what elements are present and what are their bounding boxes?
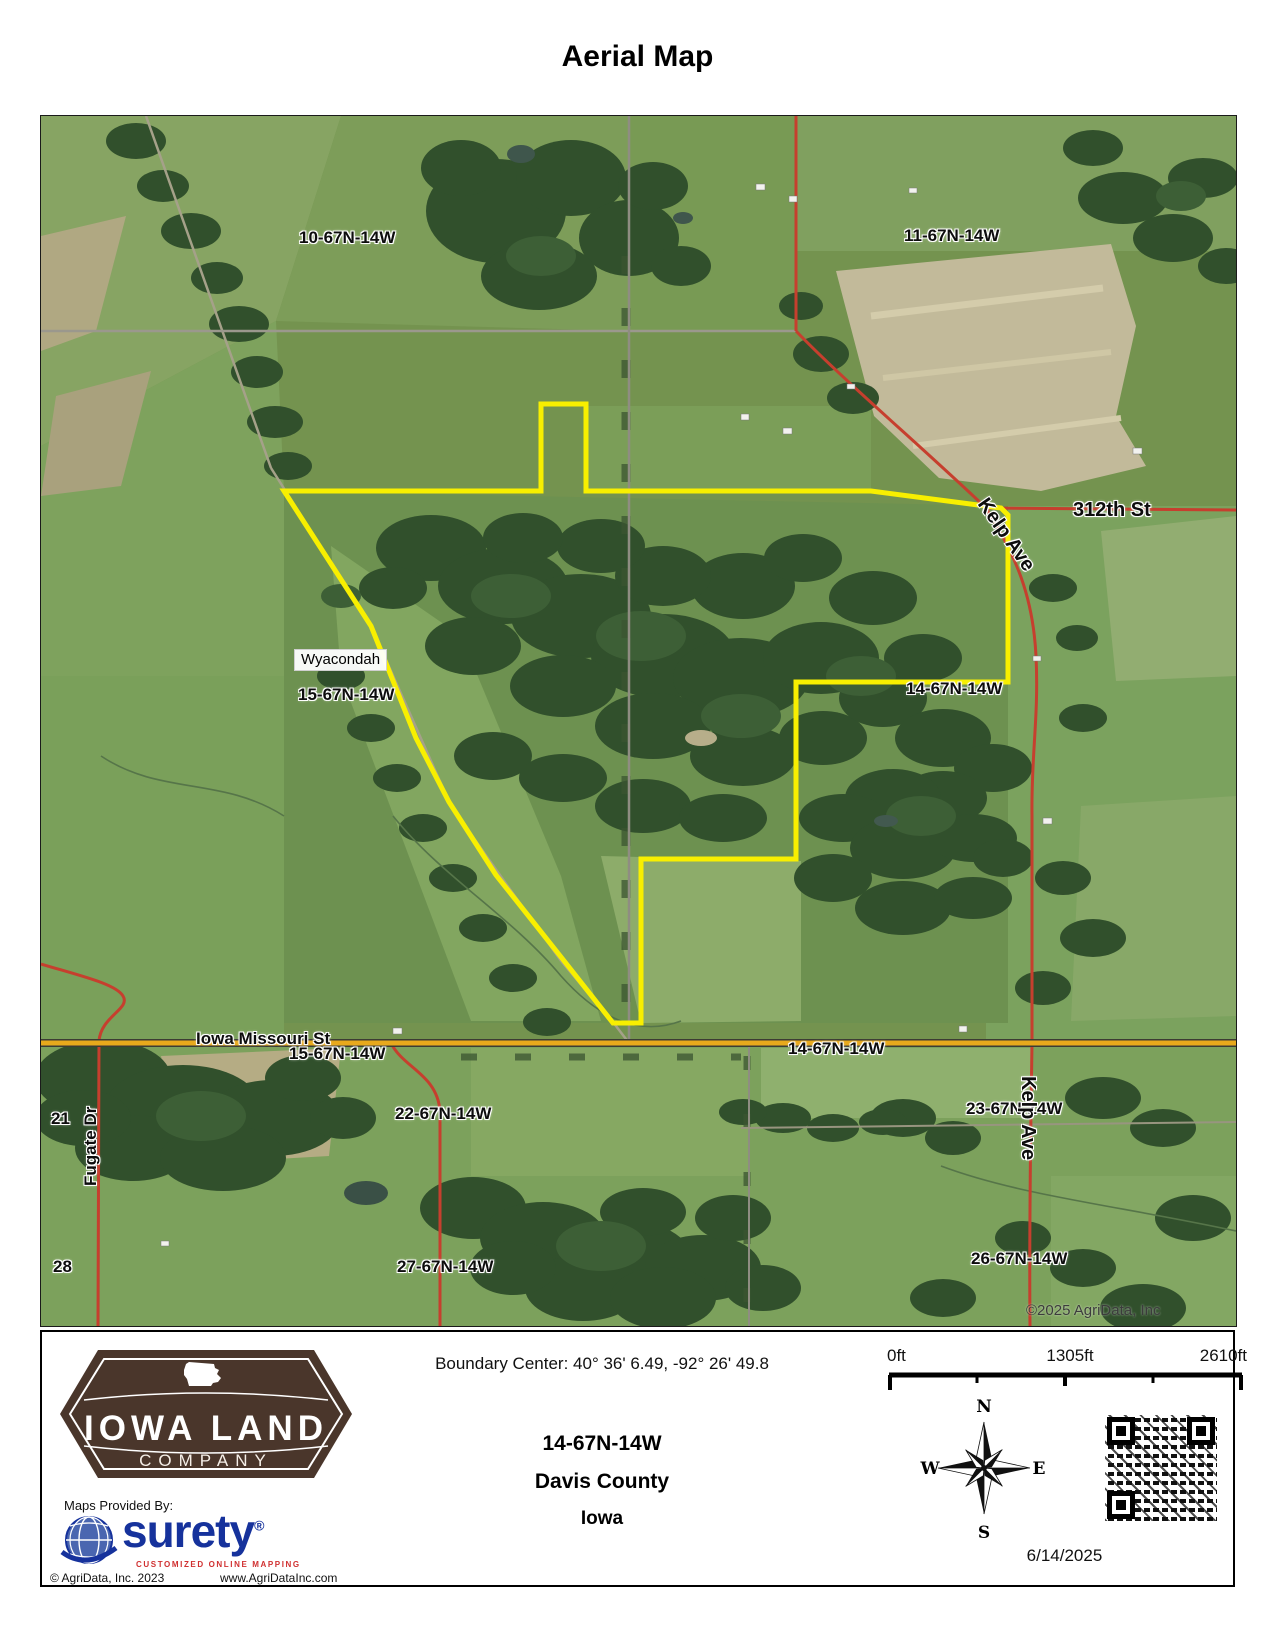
label-section-10: 10-67N-14W bbox=[299, 228, 395, 248]
county-label: Davis County bbox=[442, 1470, 762, 1494]
scale-tick-0: 0ft bbox=[887, 1346, 906, 1366]
registered-mark: ® bbox=[254, 1518, 263, 1534]
township-label: 14-67N-14W bbox=[442, 1432, 762, 1456]
label-section-26: 26-67N-14W bbox=[971, 1249, 1067, 1269]
scale-tick-end: 2610ft bbox=[1175, 1346, 1247, 1366]
compass-n: N bbox=[976, 1397, 992, 1417]
state-label: Iowa bbox=[442, 1508, 762, 1530]
iowa-land-company-logo: IOWA LAND COMPANY bbox=[56, 1344, 356, 1484]
surety-wordmark: surety bbox=[122, 1505, 254, 1557]
map-date: 6/14/2025 bbox=[992, 1546, 1137, 1566]
label-section-15-upper: 15-67N-14W bbox=[298, 685, 394, 705]
compass-e: E bbox=[1033, 1459, 1046, 1479]
qr-finder-top-right bbox=[1187, 1417, 1215, 1445]
location-block: 14-67N-14W Davis County Iowa bbox=[442, 1432, 762, 1530]
page-title: Aerial Map bbox=[0, 40, 1275, 74]
qr-finder-top-left bbox=[1107, 1417, 1135, 1445]
scale-tick-mid: 1305ft bbox=[1015, 1346, 1125, 1366]
label-fugate-dr: Fugate Dr bbox=[81, 1107, 101, 1186]
logo-line1: IOWA LAND bbox=[84, 1409, 328, 1448]
compass-w: W bbox=[919, 1459, 940, 1479]
label-section-21: 21 bbox=[51, 1109, 70, 1129]
surety-tagline: CUSTOMIZED ONLINE MAPPING bbox=[136, 1560, 301, 1569]
aerial-map-page: Aerial Map bbox=[0, 0, 1275, 1650]
boundary-center-text: Boundary Center: 40° 36' 6.49, -92° 26' … bbox=[362, 1354, 842, 1374]
label-wyacondah: Wyacondah bbox=[294, 649, 387, 671]
map-view: 10-67N-14W 11-67N-14W 312th St Kelp Ave … bbox=[40, 115, 1237, 1327]
label-section-15-road: 15-67N-14W bbox=[289, 1044, 385, 1064]
surety-globe-icon bbox=[58, 1512, 120, 1570]
label-section-22: 22-67N-14W bbox=[395, 1104, 491, 1124]
label-section-14-road: 14-67N-14W bbox=[788, 1039, 884, 1059]
label-section-23: 23-67N-14W bbox=[966, 1099, 1062, 1119]
aerial-imagery bbox=[41, 116, 1236, 1326]
footer-website: www.AgriDataInc.com bbox=[220, 1571, 337, 1585]
label-section-28: 28 bbox=[53, 1257, 72, 1277]
label-section-11: 11-67N-14W bbox=[904, 226, 999, 246]
label-kelp-ave-bottom: Kelp Ave bbox=[1016, 1076, 1039, 1160]
label-312th-st: 312th St bbox=[1073, 499, 1151, 522]
qr-code bbox=[1105, 1415, 1217, 1521]
surety-logo-text: surety® bbox=[122, 1504, 263, 1558]
label-section-14-mid: 14-67N-14W bbox=[906, 679, 1002, 699]
compass-s: S bbox=[978, 1523, 990, 1540]
label-section-27: 27-67N-14W bbox=[397, 1257, 493, 1277]
map-copyright: ©2025 AgriData, Inc bbox=[1026, 1302, 1160, 1319]
compass-rose: N S W E bbox=[919, 1390, 1049, 1540]
footer-panel: IOWA LAND COMPANY Maps Provided By: sure… bbox=[40, 1330, 1235, 1587]
scale-bar bbox=[887, 1372, 1245, 1392]
qr-finder-bottom-left bbox=[1107, 1491, 1135, 1519]
footer-copyright: © AgriData, Inc. 2023 bbox=[50, 1571, 164, 1585]
logo-line2: COMPANY bbox=[139, 1451, 273, 1470]
